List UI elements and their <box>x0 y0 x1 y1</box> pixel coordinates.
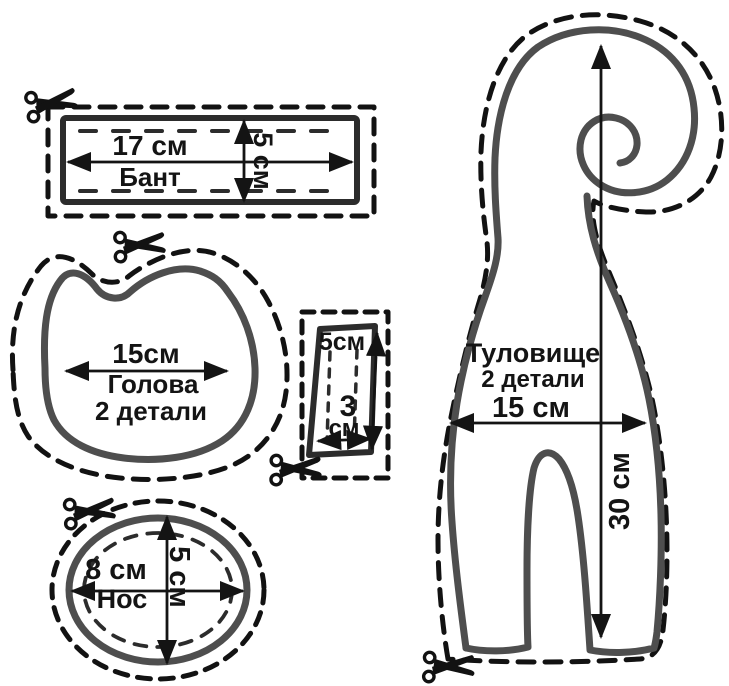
bow-width-label: 17 см <box>112 130 187 161</box>
bow-piece: 17 см Бант 5 см <box>23 83 374 216</box>
scissors-icon <box>62 493 116 529</box>
head-name-label: Голова <box>108 369 199 399</box>
strip-height-label: 5см <box>319 328 365 356</box>
body-width-label: 15 см <box>492 392 570 424</box>
body-piece: Туловище 2 детали 15 см 30 см <box>423 15 722 682</box>
head-width-label: 15см <box>112 338 179 369</box>
bow-name-label: Бант <box>119 162 181 192</box>
nose-piece: 8 см Нос 5 см <box>52 493 264 679</box>
nose-width-label: 8 см <box>85 554 147 586</box>
head-quantity-label: 2 детали <box>95 396 207 426</box>
pattern-canvas: 17 см Бант 5 см 15см Голова 2 детали 5см… <box>0 0 729 686</box>
nose-name-label: Нос <box>97 584 148 614</box>
body-name-label: Туловище <box>466 338 600 368</box>
body-quantity-label: 2 детали <box>481 366 584 393</box>
sewing-pattern-sheet: 17 см Бант 5 см 15см Голова 2 детали 5см… <box>0 0 729 686</box>
bow-height-label: 5 см <box>248 132 278 190</box>
body-height-label: 30 см <box>604 452 636 530</box>
nose-height-label: 5 см <box>163 546 195 608</box>
strip-width-unit-label: см <box>328 415 359 442</box>
head-piece: 15см Голова 2 детали <box>12 228 287 480</box>
